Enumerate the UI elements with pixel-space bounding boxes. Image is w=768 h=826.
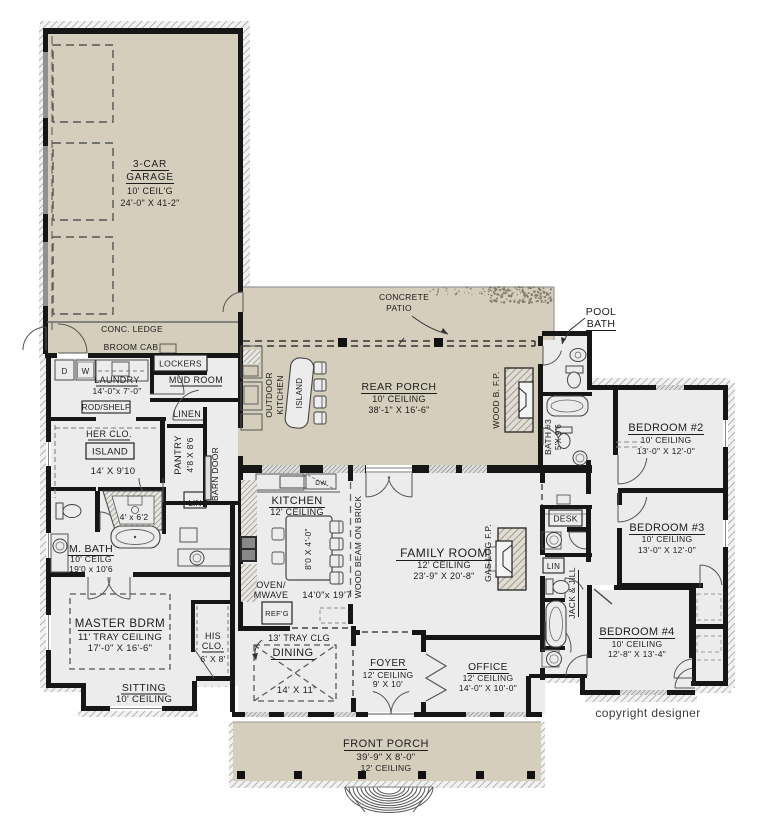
svg-text:FAMILY ROOM: FAMILY ROOM	[400, 546, 488, 560]
svg-text:BEDROOM #2: BEDROOM #2	[628, 422, 703, 434]
svg-text:CLO.: CLO.	[202, 641, 224, 651]
svg-text:12' CEILING: 12' CEILING	[361, 763, 412, 773]
svg-text:BARN DOOR: BARN DOOR	[210, 447, 220, 501]
svg-text:10' CEILING: 10' CEILING	[116, 694, 172, 705]
svg-text:23'-9" X 20'-8": 23'-9" X 20'-8"	[413, 571, 474, 581]
svg-text:8'0 X 4'-0": 8'0 X 4'-0"	[303, 528, 313, 570]
svg-text:MASTER BDRM: MASTER BDRM	[75, 618, 165, 630]
svg-text:19'0 x 10'6: 19'0 x 10'6	[69, 564, 113, 574]
svg-text:12'-8" X 13'-4": 12'-8" X 13'-4"	[608, 649, 666, 659]
svg-text:PATIO: PATIO	[386, 303, 412, 313]
svg-text:10' CEIL'G: 10' CEIL'G	[127, 186, 173, 196]
svg-text:LIN: LIN	[547, 562, 560, 571]
svg-text:PANTRY: PANTRY	[173, 435, 184, 475]
svg-text:D: D	[61, 367, 67, 376]
svg-text:FRONT PORCH: FRONT PORCH	[343, 738, 429, 750]
svg-text:CONC. LEDGE: CONC. LEDGE	[101, 324, 163, 334]
svg-text:OUTDOOR: OUTDOOR	[264, 372, 274, 418]
svg-text:ISLAND: ISLAND	[295, 378, 304, 409]
svg-text:OFFICE: OFFICE	[468, 662, 508, 673]
svg-text:MWAVE: MWAVE	[254, 590, 289, 600]
svg-text:LOCKERS: LOCKERS	[159, 359, 202, 369]
svg-text:10' CEILING: 10' CEILING	[612, 639, 663, 649]
svg-text:10' CEILING: 10' CEILING	[372, 394, 426, 404]
svg-text:BATH: BATH	[587, 318, 615, 330]
svg-text:3-CAR: 3-CAR	[133, 159, 167, 170]
svg-text:13'-0" X 12'-0": 13'-0" X 12'-0"	[638, 545, 696, 555]
svg-text:WOOD BEAM ON BRICK: WOOD BEAM ON BRICK	[353, 496, 363, 599]
svg-text:4'8 X 8'6: 4'8 X 8'6	[185, 437, 195, 472]
svg-text:DINING: DINING	[273, 647, 314, 659]
svg-text:KITCHEN: KITCHEN	[271, 495, 322, 507]
svg-text:FOYER: FOYER	[370, 658, 406, 669]
svg-text:12' CEILING: 12' CEILING	[463, 673, 514, 683]
svg-text:W: W	[82, 367, 90, 376]
svg-text:13' TRAY CLG: 13' TRAY CLG	[268, 633, 330, 643]
svg-text:HIS: HIS	[205, 631, 221, 641]
svg-text:6' X 8': 6' X 8'	[200, 654, 225, 664]
svg-text:BEDROOM #3: BEDROOM #3	[629, 522, 704, 534]
svg-text:10' CEILING: 10' CEILING	[642, 534, 693, 544]
svg-text:GARAGE: GARAGE	[126, 172, 174, 183]
svg-text:14' X 9'10: 14' X 9'10	[91, 466, 136, 477]
svg-text:copyright designer: copyright designer	[595, 706, 700, 720]
svg-text:CONCRETE: CONCRETE	[379, 292, 429, 302]
svg-text:12' CEILING: 12' CEILING	[270, 507, 324, 517]
svg-text:SITTING: SITTING	[122, 682, 166, 694]
svg-text:BROOM CAB: BROOM CAB	[104, 342, 159, 352]
svg-text:BATH #3: BATH #3	[543, 419, 553, 455]
svg-text:14'0"x 19'7: 14'0"x 19'7	[302, 590, 351, 601]
svg-text:9' X 10': 9' X 10'	[373, 679, 403, 689]
svg-text:12' CEILING: 12' CEILING	[417, 560, 471, 570]
svg-text:ISLAND: ISLAND	[92, 447, 128, 458]
svg-text:24'-0" X 41-2": 24'-0" X 41-2"	[120, 198, 179, 208]
svg-text:BEDROOM #4: BEDROOM #4	[599, 626, 674, 638]
svg-text:DESK: DESK	[553, 514, 577, 524]
svg-text:17'-0" X 16'-6": 17'-0" X 16'-6"	[88, 643, 153, 654]
svg-text:14'-0"x 7'-0": 14'-0"x 7'-0"	[92, 386, 141, 396]
svg-text:REF'G: REF'G	[265, 609, 289, 618]
svg-text:DW: DW	[315, 480, 327, 487]
svg-text:OVEN/: OVEN/	[256, 580, 286, 590]
svg-text:POOL: POOL	[586, 306, 616, 318]
svg-text:4' x 6'2: 4' x 6'2	[120, 512, 149, 522]
svg-text:ROD/SHELF: ROD/SHELF	[82, 403, 131, 412]
svg-text:14'-0" X 10'-0": 14'-0" X 10'-0"	[459, 683, 517, 693]
svg-text:GAS LOG F.P.: GAS LOG F.P.	[483, 524, 493, 582]
svg-text:WOOD B. F.P.: WOOD B. F.P.	[491, 371, 501, 428]
svg-text:KITCHEN: KITCHEN	[275, 375, 285, 414]
svg-text:13'-0" X 12'-0": 13'-0" X 12'-0"	[637, 446, 695, 456]
svg-text:14' X 11': 14' X 11'	[277, 685, 315, 696]
svg-text:LAUNDRY: LAUNDRY	[94, 375, 140, 385]
svg-text:LINEN: LINEN	[173, 409, 201, 419]
svg-text:HER CLO.: HER CLO.	[86, 429, 132, 439]
svg-text:JACK & JILL: JACK & JILL	[567, 567, 577, 619]
svg-text:REAR PORCH: REAR PORCH	[361, 381, 436, 393]
svg-text:5'X 9'6: 5'X 9'6	[554, 424, 563, 450]
svg-text:11' TRAY CEILING: 11' TRAY CEILING	[78, 632, 162, 643]
svg-text:10' CEILING: 10' CEILING	[641, 435, 692, 445]
svg-text:MUD ROOM: MUD ROOM	[169, 375, 223, 385]
svg-text:10' CEILG: 10' CEILG	[70, 554, 112, 564]
svg-text:39'-9" X 8'-0": 39'-9" X 8'-0"	[357, 752, 416, 763]
svg-text:38'-1" X 16'-6": 38'-1" X 16'-6"	[368, 405, 429, 415]
svg-text:LIN: LIN	[188, 499, 201, 508]
